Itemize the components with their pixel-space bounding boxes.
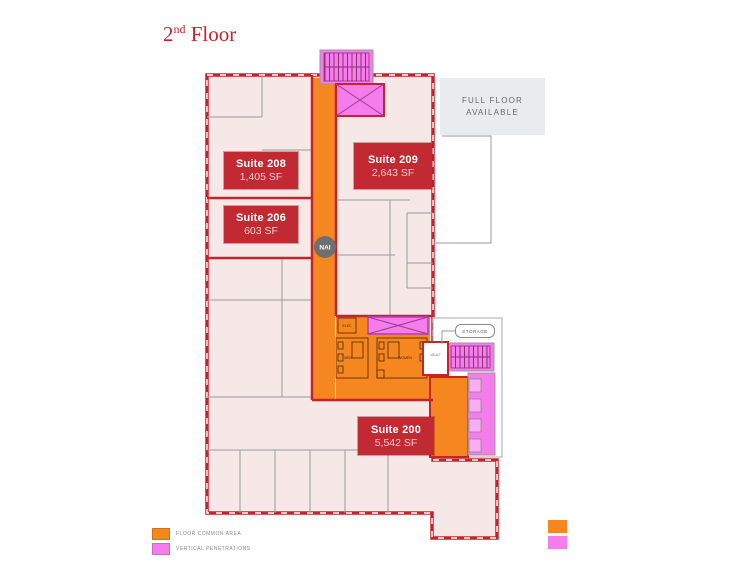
full-floor-line2: AVAILABLE xyxy=(466,107,519,119)
suite-area: 2,643 SF xyxy=(354,167,432,179)
legend-label: FLOOR COMMON AREA xyxy=(176,531,241,537)
mid-stair xyxy=(447,343,494,371)
storage-label-text: STORAGE xyxy=(462,329,487,334)
legend-item-common: FLOOR COMMON AREA xyxy=(152,528,251,540)
suite-name: Suite 206 xyxy=(224,212,298,224)
vault-label: VAULT xyxy=(430,353,442,357)
elevator-bank xyxy=(468,373,495,455)
suite-200-label[interactable]: Suite 200 5,542 SF xyxy=(358,417,434,455)
suite-name: Suite 209 xyxy=(354,154,432,166)
suite-208-label[interactable]: Suite 208 1,405 SF xyxy=(224,152,298,189)
suite-area: 5,542 SF xyxy=(358,437,434,449)
vault-room: VAULT xyxy=(423,342,448,375)
suite-name: Suite 208 xyxy=(224,158,298,170)
corner-swatch-common xyxy=(548,520,567,533)
upper-shaft xyxy=(336,84,384,116)
elec-room-label: ELEC xyxy=(342,324,352,328)
men-room-label: MEN xyxy=(344,356,352,360)
floor-plan-canvas: ELEC MEN WOMEN xyxy=(0,0,740,580)
full-floor-callout: FULL FLOOR AVAILABLE xyxy=(440,78,545,135)
legend-label: VERTICAL PENETRATIONS xyxy=(176,546,251,552)
common-area-swatch xyxy=(152,528,170,540)
full-floor-line1: FULL FLOOR xyxy=(462,95,523,107)
suite-name: Suite 200 xyxy=(358,424,434,436)
leader-lines xyxy=(434,136,491,344)
women-room-label: WOMEN xyxy=(398,356,412,360)
legend-item-penetrations: VERTICAL PENETRATIONS xyxy=(152,543,251,555)
suite-206-label[interactable]: Suite 206 603 SF xyxy=(224,206,298,243)
suite-area: 603 SF xyxy=(224,225,298,237)
suite-area: 1,405 SF xyxy=(224,171,298,183)
brand-badge-text: NAI xyxy=(319,245,330,252)
suite-209-label[interactable]: Suite 209 2,643 SF xyxy=(354,143,432,189)
penetrations-swatch xyxy=(152,543,170,555)
legend: FLOOR COMMON AREA VERTICAL PENETRATIONS xyxy=(152,528,251,555)
storage-label: STORAGE xyxy=(455,324,495,338)
brand-badge: NAI xyxy=(314,236,336,258)
floor-plan-page: 2nd Floor xyxy=(0,0,740,580)
building-outline xyxy=(207,75,497,538)
corner-swatch-penetrations xyxy=(548,536,567,549)
mid-shaft xyxy=(368,317,428,334)
stair-tower xyxy=(320,50,373,84)
